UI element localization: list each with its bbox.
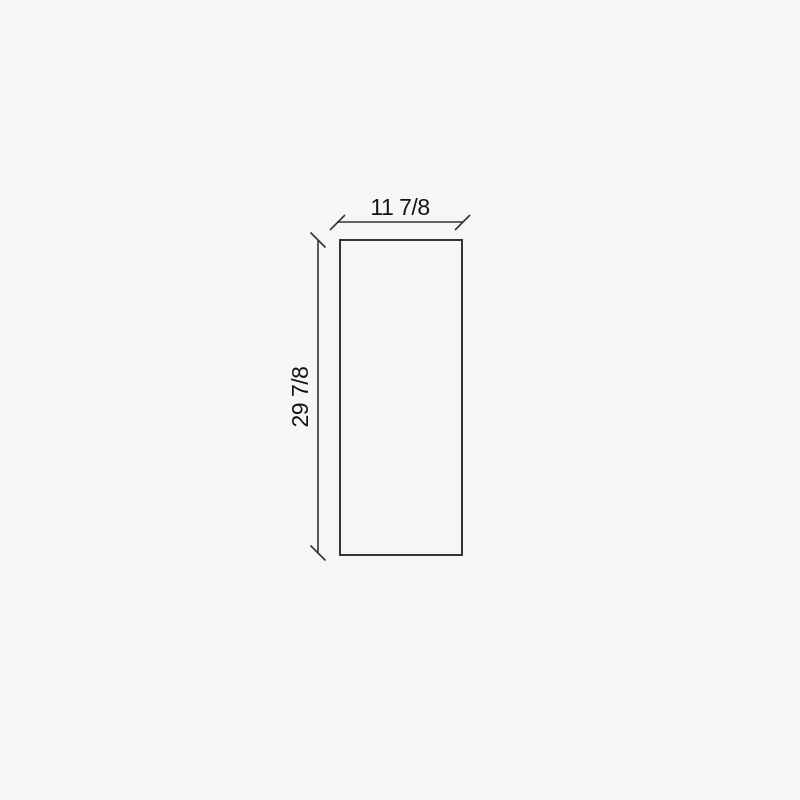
dimension-drawing: 11 7/8 29 7/8 [0, 0, 800, 800]
drawing-stage: 11 7/8 29 7/8 [0, 0, 800, 800]
drawing-background [0, 0, 800, 800]
width-dimension-label: 11 7/8 [370, 194, 429, 220]
height-dimension-label: 29 7/8 [287, 367, 313, 428]
